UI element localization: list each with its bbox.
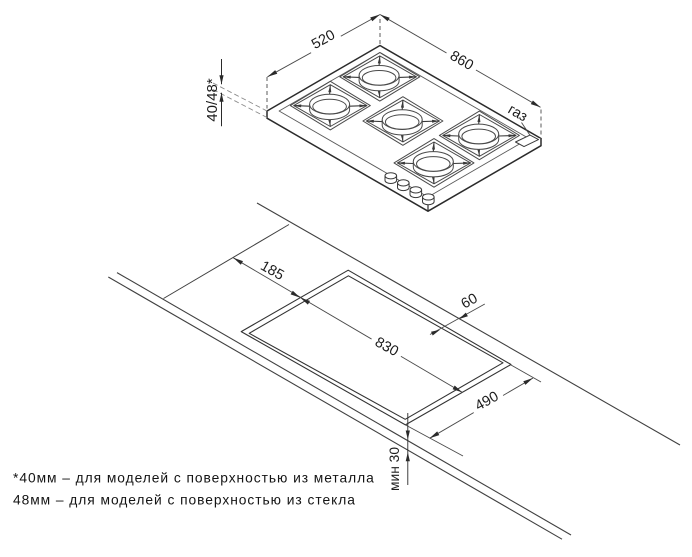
svg-text:48мм – для моделей с поверхнос: 48мм – для моделей с поверхностью из сте… [13,493,356,508]
svg-text:мин 30: мин 30 [387,447,402,491]
svg-text:40/48*: 40/48* [204,78,221,122]
svg-text:*40мм – для моделей с поверхно: *40мм – для моделей с поверхностью из ме… [13,471,375,486]
